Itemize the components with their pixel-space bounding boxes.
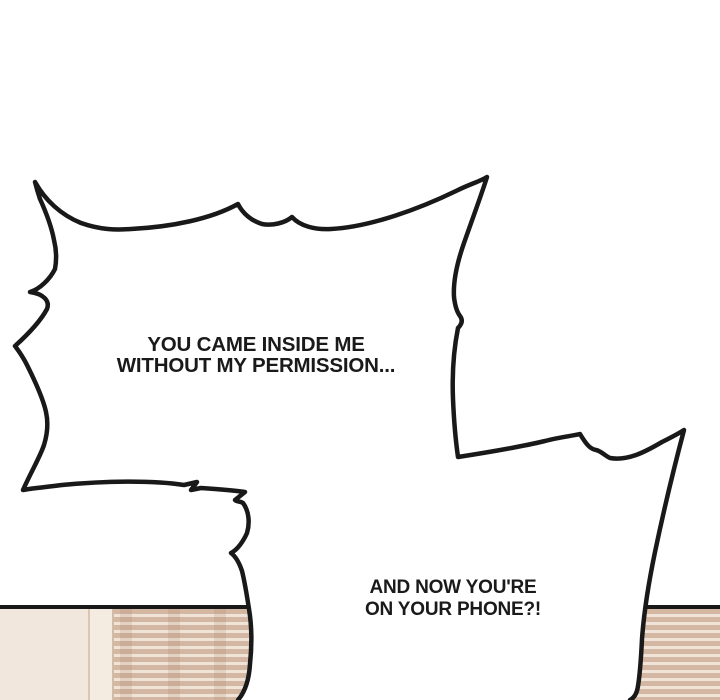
text-line: ON YOUR PHONE?!	[322, 599, 584, 621]
text-line: WITHOUT MY PERMISSION...	[100, 355, 412, 376]
speech-bubble-top-text: YOU CAME INSIDE ME WITHOUT MY PERMISSION…	[100, 334, 412, 376]
comic-panel: YOU CAME INSIDE ME WITHOUT MY PERMISSION…	[0, 0, 720, 700]
text-line: YOU CAME INSIDE ME	[100, 334, 412, 355]
speech-bubble-bottom-text: AND NOW YOU'RE ON YOUR PHONE?!	[322, 577, 584, 621]
text-line: AND NOW YOU'RE	[322, 577, 584, 599]
